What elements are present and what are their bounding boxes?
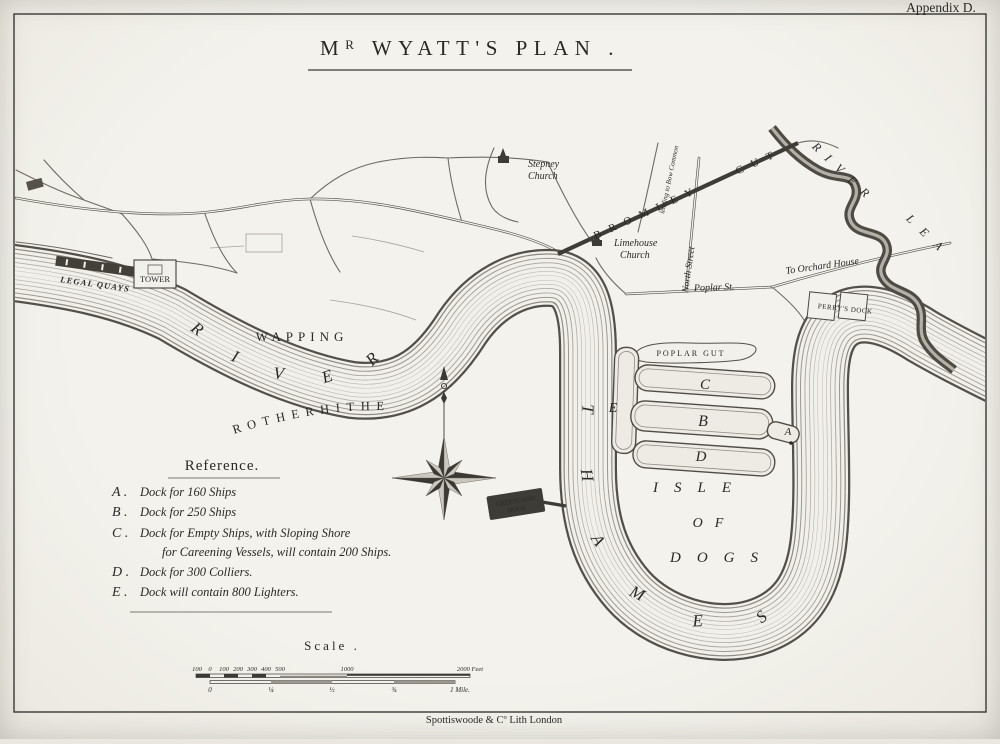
- scale-feet-tick: 1000: [341, 666, 355, 673]
- isle-label-2: OF: [693, 516, 736, 531]
- limehouse-church-label-1: Limehouse: [613, 238, 658, 249]
- reference-text: Dock for 160 Ships: [139, 485, 236, 499]
- scale-mile-tick: ¼: [268, 686, 274, 694]
- scale-feet-tick: 200: [233, 666, 244, 673]
- limehouse-church-label-2: Church: [620, 250, 650, 261]
- bromley-cut-label: BROMLEY CUT: [592, 146, 784, 242]
- scale-feet-tick: 0: [208, 666, 212, 673]
- dock-letter-a: A: [784, 426, 792, 438]
- wapping-label: WAPPING: [256, 329, 349, 344]
- reference-text: for Careening Vessels, will contain 200 …: [162, 545, 391, 559]
- scale-mile-tick: 1 Mile.: [450, 686, 470, 694]
- lea-label: LEA: [903, 211, 955, 262]
- dock-letter-c: C: [700, 377, 711, 393]
- stepney-church-label-2: Church: [528, 171, 558, 182]
- reference-block: Reference. A . Dock for 160 Ships B . Do…: [111, 458, 391, 612]
- map-canvas: RIVER THAMES RIVER LEA ROTHERHITHE BROML…: [0, 0, 1000, 739]
- reference-key: A .: [111, 485, 127, 500]
- scale-feet-tick: 100: [219, 666, 230, 673]
- scale-feet-tick: 100: [192, 666, 203, 673]
- dock-letter-b: B: [698, 413, 708, 430]
- reference-text: Dock will contain 800 Lighters.: [139, 585, 299, 599]
- dock-letter-e: E: [608, 401, 618, 416]
- scale-mile-tick: ¾: [391, 686, 397, 694]
- dock-letter-d: D: [695, 449, 707, 465]
- isle-label-3: DOGS: [669, 550, 774, 566]
- stepney-church-icon: [498, 148, 509, 163]
- reference-key: D .: [111, 565, 129, 580]
- poplar-gut-label: POPLAR GUT: [656, 349, 725, 358]
- scale-feet-tick: 400: [261, 666, 272, 673]
- building-block: [26, 178, 44, 191]
- scale-feet-tick: 2000 Feet: [457, 666, 483, 673]
- tower-label: TOWER: [140, 274, 170, 284]
- imprint-label: Spottiswoode & Cº Lith London: [426, 715, 563, 726]
- reference-key: C .: [112, 526, 128, 541]
- reference-key: B .: [112, 505, 128, 520]
- reference-text: Dock for 250 Ships: [139, 505, 236, 519]
- reference-key: E .: [111, 585, 128, 600]
- scale-title: Scale .: [304, 638, 360, 653]
- scale-mile-tick: 0: [208, 686, 212, 694]
- scanned-map-sheet: RIVER THAMES RIVER LEA ROTHERHITHE BROML…: [0, 0, 1000, 739]
- stepney-church-label-1: Stepney: [528, 159, 560, 170]
- reference-text: Dock for Empty Ships, with Sloping Shore: [139, 526, 351, 540]
- field-boundaries: [210, 234, 424, 320]
- scale-mile-tick: ½: [329, 686, 335, 694]
- poplar-st-label: Poplar St.: [693, 282, 735, 294]
- reference-title: Reference.: [185, 458, 260, 474]
- appendix-label: Appendix D.: [906, 0, 976, 15]
- reference-text: Dock for 300 Colliers.: [139, 565, 253, 579]
- dock-entrance-mark: [789, 441, 793, 445]
- scale-block: Scale . 100 0 100 200 300 400 500 1000 2…: [192, 638, 483, 694]
- scale-feet-tick: 300: [246, 666, 258, 673]
- scale-feet-tick: 500: [275, 666, 286, 673]
- isle-label-1: ISLE: [652, 480, 747, 496]
- page-title: MR WYATT'S PLAN .: [320, 36, 620, 60]
